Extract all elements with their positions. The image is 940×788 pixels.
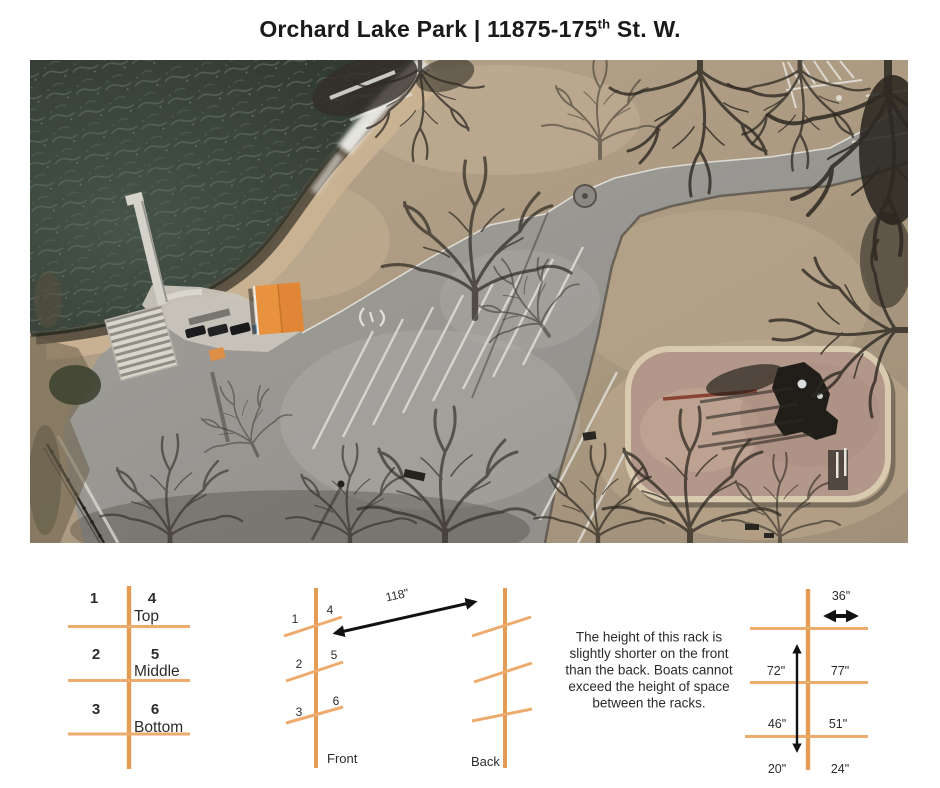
rack-arm [68, 625, 190, 628]
height-value: 46" [768, 717, 786, 731]
slot-number: 6 [333, 694, 340, 708]
slot-number: 3 [92, 701, 100, 718]
rack-diagrams: 1 4 Top 2 5 Middle 3 6 Bottom 1 4 2 5 3 … [0, 560, 940, 788]
slot-number: 4 [148, 590, 157, 607]
page: { "title": {"text": "Orchard Lake Park |… [0, 0, 940, 788]
front-label: Front [327, 751, 358, 766]
height-value: 72" [767, 664, 785, 678]
rack-arms [284, 617, 532, 723]
rack-post [806, 589, 810, 770]
slot-number: 1 [292, 612, 299, 626]
spacing-arrow [336, 602, 474, 633]
spacing-value: 118" [384, 586, 410, 605]
rack-arm [750, 681, 868, 684]
level-label: Middle [134, 663, 180, 680]
slot-number: 2 [92, 646, 100, 663]
slot-number: 2 [296, 657, 303, 671]
slot-number: 6 [151, 701, 159, 718]
note-line: between the racks. [592, 696, 705, 711]
note-line: exceed the height of space [568, 679, 729, 694]
rack-side-view: 1 4 2 5 3 6 118" Front Back [284, 586, 532, 769]
note-line: The height of this rack is [576, 630, 723, 645]
note-line: slightly shorter on the front [569, 646, 728, 661]
height-value: 51" [829, 717, 847, 731]
title-main: Orchard Lake Park | 11875-175 [259, 16, 597, 42]
rack-height-view: 36" 72" 77" 46" 51" 20" 24" [745, 589, 868, 776]
front-rack-post [314, 588, 318, 768]
height-value: 77" [831, 664, 849, 678]
height-value: 20" [768, 762, 786, 776]
note-line: than the back. Boats cannot [565, 663, 733, 678]
level-label: Bottom [134, 719, 183, 736]
rack-arm [750, 627, 868, 630]
width-value: 36" [832, 589, 850, 603]
rack-note: The height of this rack is slightly shor… [565, 630, 733, 711]
title-ordinal: th [598, 16, 611, 31]
slot-number: 1 [90, 590, 98, 607]
aerial-photo [30, 60, 908, 543]
rack-position-key: 1 4 Top 2 5 Middle 3 6 Bottom [68, 586, 190, 769]
slot-number: 5 [331, 648, 338, 662]
rack-post [127, 586, 131, 769]
rack-arm [745, 735, 868, 738]
slot-number: 4 [327, 603, 334, 617]
back-rack-post [503, 588, 507, 768]
page-title: Orchard Lake Park | 11875-175th St. W. [0, 16, 940, 43]
back-label: Back [471, 754, 500, 769]
level-label: Top [134, 608, 159, 625]
height-value: 24" [831, 762, 849, 776]
title-suffix: St. W. [610, 16, 680, 42]
slot-number: 3 [296, 705, 303, 719]
slot-number: 5 [151, 646, 159, 663]
